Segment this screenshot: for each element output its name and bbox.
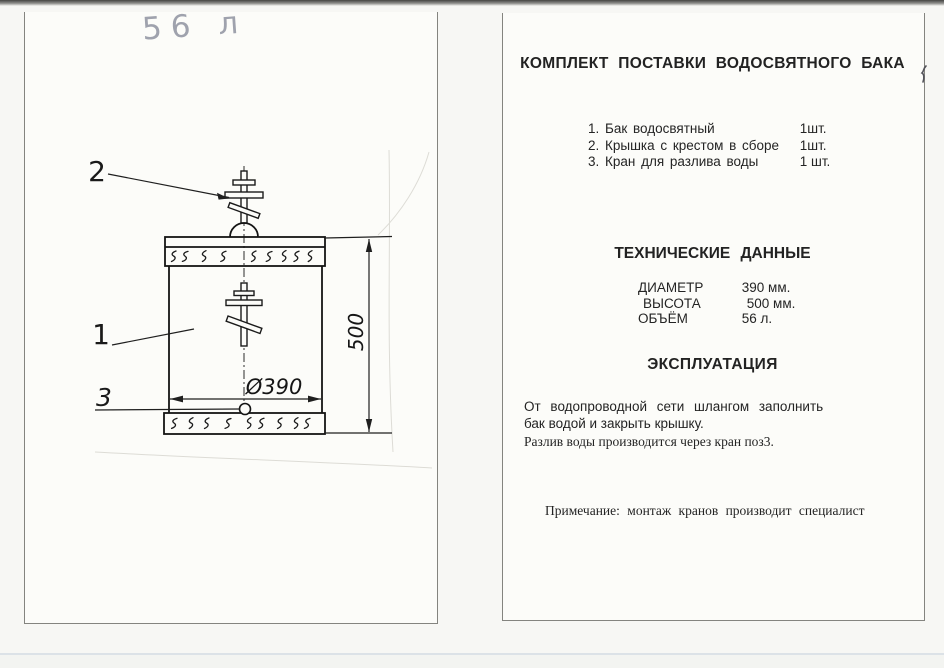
spec-row: ОБЪЁМ 56 л. [638,311,772,326]
spec-value: 390 мм. [742,280,791,295]
document-note: Примечание: монтаж кранов производит спе… [545,503,865,519]
scanner-top-edge [0,0,944,6]
operation-heading: ЭКСПЛУАТАЦИЯ [502,356,923,374]
supply-item-name: 2. Крышка с крестом в сборе [588,138,796,153]
supply-list-row: 3. Кран для разлива воды 1 шт. [588,154,830,169]
spec-label: ОБЪЁМ [638,311,738,326]
handwritten-volume-note: 56 л [141,4,248,47]
supply-item-name: 3. Кран для разлива воды [588,154,796,169]
supply-item-qty: 1шт. [800,121,827,136]
spec-row: ДИАМЕТР 390 мм. [638,280,790,295]
scanner-bottom-band [0,655,944,668]
technical-data-heading: ТЕХНИЧЕСКИЕ ДАННЫЕ [502,245,923,263]
operation-line: От водопроводной сети шлангом заполнить [524,399,823,414]
supply-item-qty: 1шт. [800,138,827,153]
supply-list-row: 1. Бак водосвятный 1шт. [588,121,827,136]
supply-list-row: 2. Крышка с крестом в сборе 1шт. [588,138,827,153]
drawing-sheet [24,12,438,624]
operation-line: бак водой и закрыть крышку. [524,416,704,431]
supply-item-name: 1. Бак водосвятный [588,121,796,136]
spec-label: ВЫСОТА [638,296,743,311]
operation-line: Разлив воды производится через кран поз3… [524,434,774,450]
document-title: КОМПЛЕКТ ПОСТАВКИ ВОДОСВЯТНОГО БАКА [502,55,923,73]
scanned-page: 56 л [0,0,944,668]
spec-label: ДИАМЕТР [638,280,738,295]
supply-item-qty: 1 шт. [800,154,831,169]
spec-row: ВЫСОТА 500 мм. [638,296,795,311]
spec-value: 56 л. [742,311,772,326]
spec-value: 500 мм. [747,296,796,311]
